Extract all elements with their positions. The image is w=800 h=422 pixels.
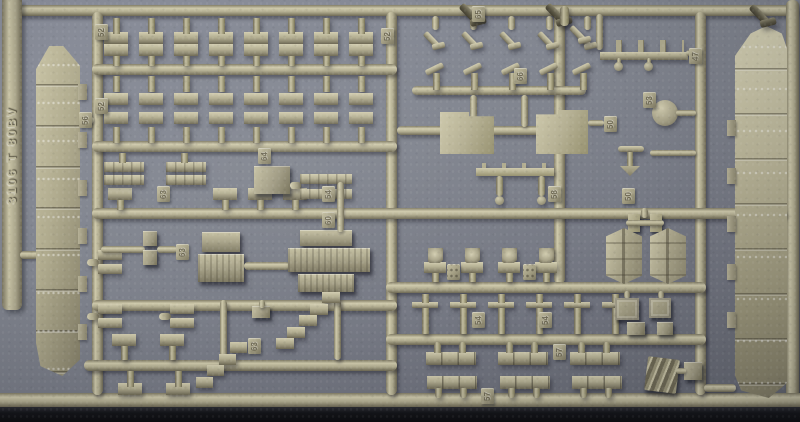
davit-arm-part — [462, 28, 486, 52]
winch-fairlead-part — [424, 248, 446, 282]
small-box-part — [684, 362, 702, 380]
molded-fitting-part — [166, 371, 190, 395]
part-tag-number: 60 — [324, 216, 333, 225]
part-tag-number: 63 — [250, 342, 259, 351]
gate-stub — [676, 368, 686, 374]
deck-structure-part — [202, 232, 240, 252]
part-tag: 64 — [258, 148, 271, 164]
small-box-part — [143, 250, 157, 265]
molded-fitting-part — [209, 76, 233, 105]
part-tag: 50 — [622, 188, 635, 204]
molded-fitting-part — [104, 44, 128, 66]
part-tag: 52 — [95, 98, 108, 114]
rail-post-part — [496, 176, 503, 196]
davit-arm-part — [424, 28, 448, 52]
hull-half-right-part — [735, 26, 787, 398]
molded-fitting-part — [349, 44, 373, 66]
winch-fairlead-part — [498, 248, 520, 282]
life-raft-row-part — [572, 376, 622, 389]
hull-bulwark-tab — [78, 84, 87, 100]
hull-bulwark-tab — [727, 216, 736, 232]
molded-fitting-part — [174, 112, 198, 143]
gate-stub — [157, 246, 177, 253]
bulkhead-panel-part — [440, 112, 494, 154]
molded-fitting-part — [139, 44, 163, 66]
crane-davit-part — [571, 62, 595, 90]
molded-fitting-part — [314, 44, 338, 66]
rail-post-foot — [495, 196, 504, 205]
part-tag: 65 — [472, 6, 485, 22]
crane-davit-part — [538, 62, 562, 90]
molded-fitting-part — [209, 18, 233, 44]
part-tag: 54 — [539, 312, 552, 328]
crane-davit-part — [424, 62, 448, 90]
superstructure-part — [300, 230, 352, 246]
molded-fitting-part — [118, 371, 142, 395]
molded-fitting-part — [209, 112, 233, 143]
ships-boat-part — [606, 228, 642, 284]
part-tag: 63 — [157, 186, 170, 202]
life-raft-stack-part — [166, 162, 206, 185]
davit-pulley-part — [644, 62, 653, 71]
gate-stub — [101, 246, 145, 253]
hull-bulwark-tab — [727, 168, 736, 184]
part-tag-number: 65 — [474, 10, 483, 19]
hull-bulwark-tab — [78, 228, 87, 244]
life-raft-row-part — [500, 376, 550, 389]
anchor-part — [620, 166, 640, 176]
deck-hatch-part — [649, 298, 671, 318]
davit-arm-part — [500, 28, 524, 52]
molded-fitting-part — [279, 76, 303, 105]
part-tag-number: 54 — [541, 316, 550, 325]
molded-fitting-part — [174, 44, 198, 66]
molded-fitting-part — [174, 76, 198, 105]
vent-block-part — [98, 250, 122, 274]
molded-fitting-part — [314, 112, 338, 143]
gate-stub — [337, 182, 344, 232]
part-tag: 52 — [381, 28, 394, 44]
deckhouse-box-part — [254, 166, 290, 194]
runner-horizontal-5 — [92, 300, 397, 311]
part-tag-unreadable — [447, 264, 460, 280]
life-raft-row-part — [427, 376, 477, 389]
life-raft-stack-part — [104, 162, 144, 185]
part-tag: 66 — [514, 68, 527, 84]
molded-fitting-part — [160, 334, 184, 360]
part-tag: 50 — [604, 116, 617, 132]
part-tag-number: 63 — [178, 248, 187, 257]
part-tag-number: 58 — [550, 190, 559, 199]
vent-block-part — [170, 304, 194, 328]
engine-block-part — [644, 356, 680, 394]
part-tag: 54 — [322, 186, 335, 202]
part-tag-number: 64 — [260, 152, 269, 161]
deck-structure-part — [198, 254, 244, 282]
hull-half-left-part — [36, 46, 80, 376]
molded-fitting-part — [213, 188, 237, 210]
runner-horizontal-3 — [92, 208, 786, 219]
part-tag: 63 — [176, 244, 189, 260]
part-tag-number: 52 — [97, 102, 106, 111]
part-tag: 57 — [553, 344, 566, 360]
part-tag: 63 — [248, 338, 261, 354]
sprue-frame-top — [16, 5, 797, 16]
bollard-cross-part — [488, 294, 514, 334]
molded-fitting-part — [279, 18, 303, 44]
part-tag: 60 — [322, 212, 335, 228]
small-box-part — [143, 231, 157, 246]
part-tag-number: 66 — [516, 72, 525, 81]
life-raft-row-part — [498, 352, 548, 365]
sprue-frame-right — [786, 0, 799, 400]
hull-bulwark-tab — [78, 180, 87, 196]
bollard-cross-part — [564, 294, 590, 334]
molded-fitting-part — [279, 44, 303, 66]
anchor-part — [627, 152, 633, 167]
part-tag-number: 57 — [483, 392, 492, 401]
hull-bulwark-tab — [78, 132, 87, 148]
molded-fitting-part — [139, 18, 163, 44]
winch-fairlead-part — [461, 248, 483, 282]
molded-fitting-part — [349, 112, 373, 143]
part-tag: 56 — [79, 112, 92, 128]
part-tag: 47 — [689, 48, 702, 64]
gate-hull-right — [704, 384, 736, 392]
molded-fitting-part — [112, 334, 136, 360]
part-tag-number: 63 — [159, 190, 168, 199]
small-box-part — [627, 322, 645, 335]
life-raft-row-part — [570, 352, 620, 365]
part-tag-number: 54 — [324, 190, 333, 199]
shadowed-davit-part — [750, 0, 780, 30]
part-tag: 54 — [472, 312, 485, 328]
part-tag-number: 53 — [645, 96, 654, 105]
part-tag-number: 56 — [81, 116, 90, 125]
molded-fitting-part — [349, 18, 373, 44]
molded-fitting-part — [244, 44, 268, 66]
life-raft-row-part — [426, 352, 476, 365]
winch-fairlead-part — [535, 248, 557, 282]
molded-fitting-part — [314, 76, 338, 105]
gate-stub — [650, 150, 696, 156]
crane-davit-part — [462, 62, 486, 90]
molded-fitting-part — [349, 76, 373, 105]
part-tag-number: 52 — [383, 32, 392, 41]
molded-fitting-part — [209, 44, 233, 66]
embossed-sprue-code: 3106 T 80BV — [5, 106, 19, 204]
sprue-frame-left: 3106 T 80BV — [2, 0, 22, 310]
hull-bulwark-tab — [78, 276, 87, 292]
gate-stub — [521, 95, 528, 127]
part-tag: 58 — [548, 186, 561, 202]
gate-stub — [626, 220, 664, 226]
bulkhead-panel-part — [536, 110, 588, 154]
part-tag-number: 50 — [606, 120, 615, 129]
part-tag: 52 — [95, 24, 108, 40]
hull-bulwark-tab — [727, 120, 736, 136]
molded-fitting-part — [244, 112, 268, 143]
gate-stub — [641, 208, 648, 218]
molded-fitting-part — [244, 76, 268, 105]
part-tag-unreadable — [523, 264, 536, 280]
molded-fitting-part — [314, 18, 338, 44]
part-tag-number: 47 — [691, 52, 700, 61]
deck-rail-part — [476, 168, 554, 176]
part-tag-number: 52 — [97, 28, 106, 37]
molded-fitting-part — [139, 76, 163, 105]
molded-fitting-part — [104, 112, 128, 143]
gate-stub — [244, 262, 290, 270]
stair-companionway-part — [276, 292, 340, 350]
mast-section-part — [560, 6, 569, 26]
molded-fitting-part — [139, 112, 163, 143]
rail-post-foot — [537, 196, 546, 205]
gate-stub — [588, 120, 604, 126]
superstructure-part — [288, 248, 370, 272]
davit-pulley-part — [614, 62, 623, 71]
part-tag-number: 54 — [474, 316, 483, 325]
gate-stub — [676, 110, 696, 116]
hull-bulwark-tab — [727, 312, 736, 328]
sprue-photo: 3106 T 80BV — [0, 0, 800, 422]
boat-davit-rack-part — [600, 40, 688, 60]
vent-block-part — [98, 304, 122, 328]
molded-fitting-part — [279, 112, 303, 143]
davit-arm-part — [538, 28, 562, 52]
sprue-frame-bottom — [0, 393, 800, 407]
part-tag-number: 50 — [624, 192, 633, 201]
superstructure-part — [298, 274, 354, 292]
part-tag-number: 57 — [555, 348, 564, 357]
bollard-cross-part — [412, 294, 438, 334]
part-tag: 53 — [643, 92, 656, 108]
photo-shadow-strip — [0, 407, 800, 422]
molded-fitting-part — [174, 18, 198, 44]
deck-hatch-part — [615, 298, 639, 320]
gate-stub — [259, 300, 265, 308]
small-box-part — [657, 322, 673, 335]
gate-frame-hull — [20, 251, 38, 259]
part-tag: 57 — [481, 388, 494, 404]
molded-fitting-part — [108, 188, 132, 210]
hull-bulwark-tab — [727, 264, 736, 280]
ships-boat-part — [650, 228, 686, 284]
hull-bulwark-tab — [78, 324, 87, 340]
molded-fitting-part — [244, 18, 268, 44]
stair-companionway-part — [196, 342, 248, 389]
rail-post-part — [538, 176, 545, 196]
davit-arm-part — [570, 22, 594, 46]
